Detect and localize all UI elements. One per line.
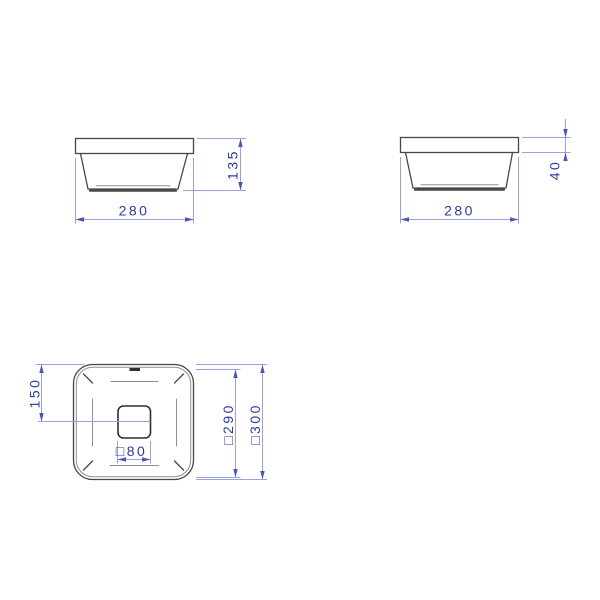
plan-overflow-mark-group	[130, 368, 141, 371]
plan-corner-tick-top-left	[84, 374, 93, 383]
plan-corner-tick-bottom-right	[175, 461, 184, 470]
technical-drawing-canvas: 280 135 280 40	[0, 0, 600, 600]
arrow-down-icon	[260, 471, 264, 480]
side-width-label: 280	[444, 203, 475, 219]
arrow-left-icon	[401, 217, 410, 221]
front-width-label: 280	[119, 203, 150, 219]
arrow-left-icon	[76, 217, 85, 221]
plan-inner-square-label: □290	[220, 403, 236, 445]
arrow-up-icon	[563, 153, 567, 162]
drawing-sheet: 280 135 280 40	[0, 0, 600, 600]
plan-center-distance-label: 150	[27, 378, 43, 409]
side-basin-outline	[401, 138, 519, 190]
arrow-down-icon	[39, 413, 43, 422]
plan-view: 150 □80 □290 □300	[27, 365, 268, 480]
side-elevation-view: 280 40	[401, 119, 571, 224]
front-basin-rim	[76, 139, 194, 154]
arrow-down-icon	[563, 129, 567, 138]
arrow-up-icon	[260, 365, 264, 374]
arrow-right-icon	[185, 217, 194, 221]
plan-dimension-labels: 150 □80 □290 □300	[27, 378, 264, 459]
plan-overflow-mark	[130, 368, 141, 371]
arrow-up-icon	[233, 370, 237, 379]
side-dimension-arrows	[401, 129, 568, 222]
plan-outer-square-label: □300	[247, 403, 263, 445]
arrow-up-icon	[238, 139, 242, 148]
front-dimension-lines	[76, 139, 247, 224]
side-dimension-lines	[401, 119, 571, 224]
front-basin-outline	[76, 139, 194, 191]
arrow-down-icon	[233, 469, 237, 478]
front-elevation-view: 280 135	[76, 139, 247, 224]
arrow-down-icon	[238, 182, 242, 191]
plan-drain-label: □80	[116, 443, 148, 459]
arrow-right-icon	[510, 217, 519, 221]
plan-corner-tick-bottom-left	[84, 461, 93, 470]
arrow-up-icon	[39, 365, 43, 374]
plan-corner-tick-top-right	[175, 374, 184, 383]
front-dimension-arrows	[76, 139, 243, 222]
side-basin-rim	[401, 138, 519, 153]
side-rim-height-label: 40	[547, 160, 563, 181]
front-basin-body	[81, 154, 188, 190]
side-basin-body	[406, 153, 513, 189]
front-height-label: 135	[225, 149, 241, 180]
